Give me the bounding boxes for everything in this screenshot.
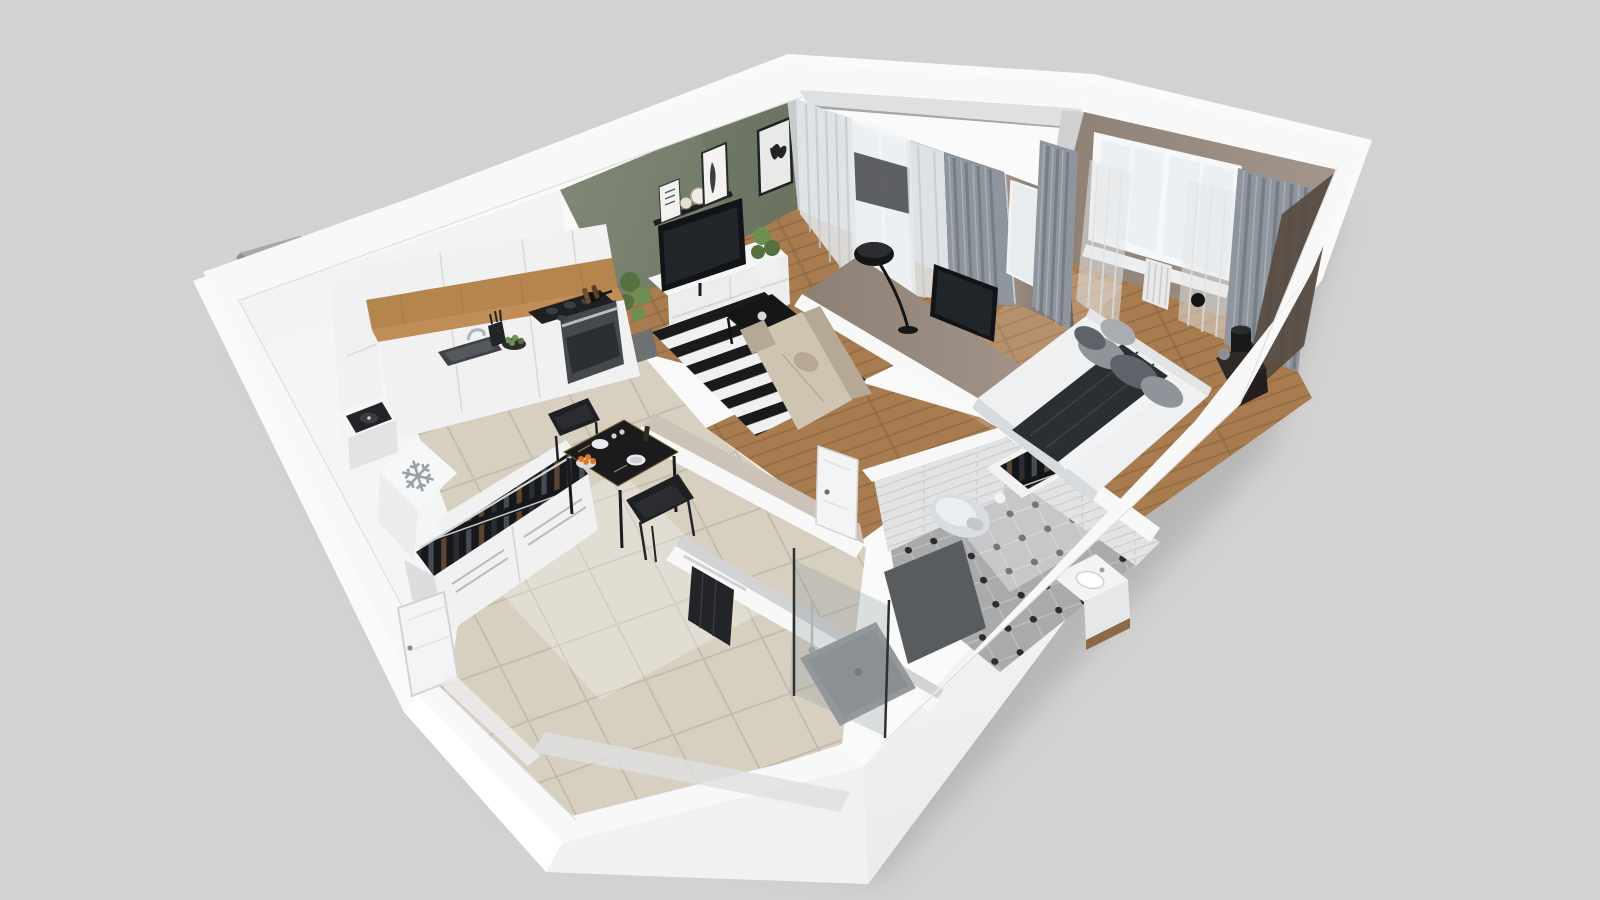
gray-curtain-bedroom-left (1032, 140, 1078, 330)
table-decor (758, 312, 767, 321)
butterfly-picture-frame (758, 118, 792, 195)
feather-picture-frame (702, 143, 728, 206)
round-frame (680, 197, 692, 209)
door-handle (824, 489, 829, 494)
floorplan-svg: ❄ (0, 0, 1600, 900)
interior-door-open (816, 446, 858, 540)
bedroom-floor-lamp (1191, 293, 1205, 307)
plate (592, 439, 609, 449)
door-handle (407, 645, 412, 650)
floorplan-render: ❄ (0, 0, 1600, 900)
toilet-paper (995, 493, 1006, 504)
